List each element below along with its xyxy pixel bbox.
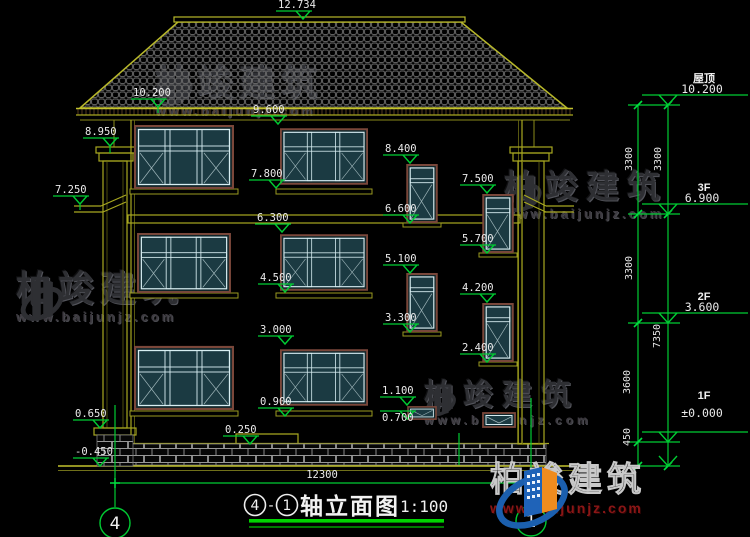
elevation-mark-stair-a2-top: 5.100 — [383, 253, 419, 273]
svg-text:6.900: 6.900 — [685, 191, 720, 205]
svg-text:1.100: 1.100 — [382, 385, 414, 397]
svg-text:8.400: 8.400 — [385, 143, 417, 155]
svg-text:5.700: 5.700 — [462, 233, 494, 245]
svg-text:4.500: 4.500 — [260, 272, 292, 284]
elevation-mark-small-win-top: 1.100 — [380, 385, 416, 405]
elevation-mark-win3f-top: 9.600 — [251, 104, 287, 124]
pillar-right — [510, 147, 574, 444]
svg-text:0.700: 0.700 — [382, 412, 414, 424]
svg-text:6.300: 6.300 — [257, 212, 289, 224]
svg-text:2.400: 2.400 — [462, 342, 494, 354]
window-1f-left — [135, 347, 233, 409]
level-marker-2f: 2F 3.600 — [642, 291, 748, 323]
elevation-mark-win2f-top: 6.300 — [255, 212, 291, 232]
level-marker-roof: 屋顶 10.200 — [642, 72, 748, 105]
svg-text:±0.000: ±0.000 — [681, 406, 723, 420]
svg-text:7.500: 7.500 — [462, 173, 494, 185]
dim-segment: 7350 — [652, 324, 663, 348]
svg-text:12.734: 12.734 — [278, 0, 316, 11]
window-1f-center — [281, 350, 367, 405]
small-window-right — [483, 413, 515, 427]
window-2f-left — [138, 234, 230, 292]
svg-text:3.000: 3.000 — [260, 324, 292, 336]
svg-text:1: 1 — [526, 512, 537, 532]
floor-slab-band — [128, 215, 520, 223]
window-3f-center — [281, 129, 367, 184]
dim-segment: 3300 — [624, 147, 635, 171]
svg-text:4: 4 — [110, 514, 121, 534]
elevation-mark-win3f-bottom: 7.800 — [249, 168, 285, 188]
svg-text:1F: 1F — [698, 390, 711, 402]
title-underline — [249, 519, 444, 523]
level-marker-3f: 3F 6.900 — [642, 182, 748, 214]
svg-text:10.200: 10.200 — [133, 87, 171, 99]
dim-segment: 3300 — [653, 147, 664, 171]
elevation-mark-stair-a1-top: 8.400 — [383, 143, 419, 163]
svg-text:0.250: 0.250 — [225, 424, 257, 436]
brick-plinth — [128, 444, 546, 465]
elevation-mark-stair-b1-top: 7.500 — [460, 173, 496, 193]
svg-text:3.600: 3.600 — [685, 300, 720, 314]
elevation-mark-ridge: 12.734 — [276, 0, 316, 19]
svg-text:1: 1 — [283, 498, 292, 514]
svg-text:6.600: 6.600 — [385, 203, 417, 215]
svg-text:0.650: 0.650 — [75, 408, 107, 420]
elevation-mark-porch-step: 0.250 — [223, 424, 259, 444]
svg-text:4.200: 4.200 — [462, 282, 494, 294]
title-separator: - — [268, 498, 273, 514]
elevation-drawing: 12.734 10.200 9.600 8.950 8.400 7.800 7.… — [0, 0, 750, 537]
dim-segment: 3300 — [624, 256, 635, 280]
drawing-title: 4 - 1 轴立面图 1:100 — [245, 493, 449, 527]
corbel-right — [524, 195, 574, 212]
dim-segment: 450 — [622, 428, 633, 446]
level-marker-1f: 1F ±0.000 — [642, 390, 748, 442]
svg-text:4: 4 — [251, 498, 260, 514]
window-3f-left — [135, 126, 233, 188]
svg-text:8.950: 8.950 — [85, 126, 117, 138]
ridge-cap — [174, 17, 465, 22]
elevation-mark-win1f-top: 3.000 — [258, 324, 294, 344]
svg-text:9.600: 9.600 — [253, 104, 285, 116]
cad-elevation-screenshot: 柏竣建筑 www.baijunjz.com 柏竣建筑 www.baijunjz.… — [0, 0, 750, 537]
hip-roof — [76, 17, 573, 120]
window-2f-center — [281, 235, 367, 290]
svg-text:10.200: 10.200 — [681, 82, 723, 96]
elevation-mark-small-win-bottom: 0.700 — [380, 411, 416, 424]
svg-text:3.300: 3.300 — [385, 312, 417, 324]
title-text: 轴立面图 — [300, 493, 400, 519]
windows — [130, 126, 517, 427]
elevation-mark-stair-b2-top: 4.200 — [460, 282, 496, 302]
dim-segment: 3600 — [622, 370, 633, 394]
svg-text:7.250: 7.250 — [55, 184, 87, 196]
title-scale: 1:100 — [400, 497, 448, 516]
right-dimension-chain: 3300 3300 3600 450 3300 7350 屋顶 10.200 3… — [622, 72, 748, 470]
corbel-left — [74, 195, 126, 212]
svg-text:0.900: 0.900 — [260, 396, 292, 408]
total-width-dim: 12300 — [306, 469, 338, 481]
svg-text:-0.450: -0.450 — [75, 446, 113, 458]
eave-fascia — [76, 109, 573, 121]
svg-text:7.800: 7.800 — [251, 168, 283, 180]
svg-text:5.100: 5.100 — [385, 253, 417, 265]
